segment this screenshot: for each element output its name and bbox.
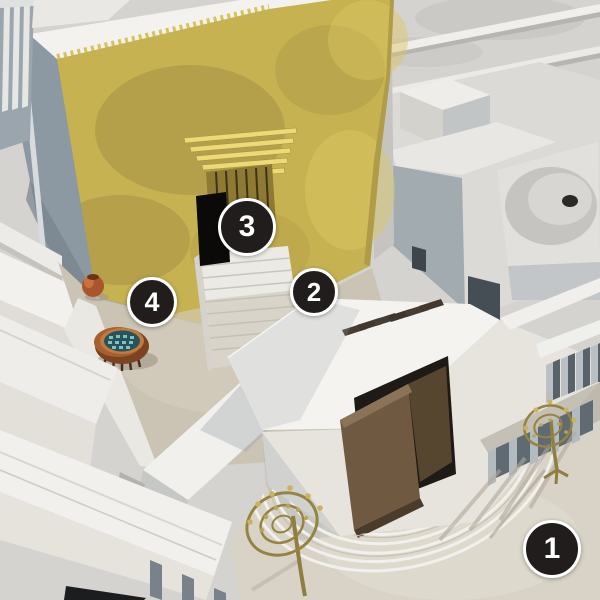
hotspot-marker-1[interactable]: 1 <box>523 520 581 578</box>
hotspot-marker-4[interactable]: 4 <box>127 277 177 327</box>
dome-oculus <box>562 195 578 207</box>
hotspot-marker-3[interactable]: 3 <box>218 198 276 256</box>
hotspot-marker-2[interactable]: 2 <box>290 268 338 316</box>
chamber-window <box>412 246 426 272</box>
dome-roof <box>505 167 597 245</box>
temple-3d-scene: 1 2 3 4 <box>0 0 600 600</box>
